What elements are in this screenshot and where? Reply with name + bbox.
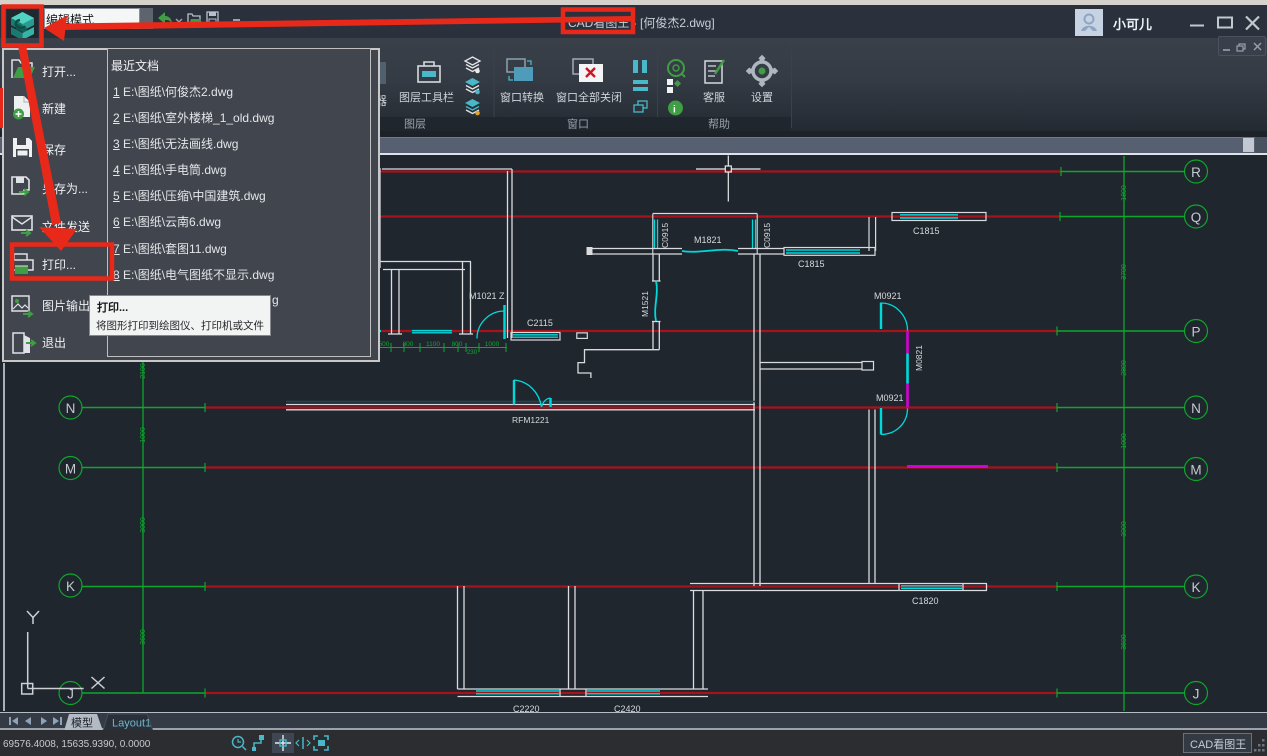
svg-text:M1821: M1821 bbox=[694, 235, 722, 245]
svg-text:C1815: C1815 bbox=[913, 226, 940, 236]
svg-text:N: N bbox=[66, 401, 76, 416]
svg-text:窗口全部关闭: 窗口全部关闭 bbox=[556, 90, 622, 104]
svg-text:C2115: C2115 bbox=[527, 318, 553, 328]
svg-text:C1820: C1820 bbox=[912, 596, 939, 606]
svg-text:C0915: C0915 bbox=[660, 223, 670, 248]
svg-text:M1021 Z: M1021 Z bbox=[469, 291, 505, 301]
svg-text:3000: 3000 bbox=[140, 517, 147, 533]
svg-text:P: P bbox=[1191, 325, 1200, 340]
svg-text:Layout1: Layout1 bbox=[112, 718, 151, 730]
svg-text:M1521: M1521 bbox=[640, 291, 650, 317]
svg-text:M0921: M0921 bbox=[874, 291, 902, 301]
svg-text:3000: 3000 bbox=[1121, 521, 1128, 537]
svg-text:230: 230 bbox=[467, 349, 478, 356]
svg-text:M0821: M0821 bbox=[914, 345, 924, 371]
svg-text:设置: 设置 bbox=[751, 91, 773, 104]
svg-text:M: M bbox=[65, 462, 76, 477]
svg-text:窗口: 窗口 bbox=[567, 117, 589, 131]
svg-text:1000: 1000 bbox=[140, 427, 147, 443]
svg-text:1000: 1000 bbox=[1121, 433, 1128, 449]
svg-text:C2420: C2420 bbox=[614, 704, 641, 712]
svg-text:K: K bbox=[1191, 580, 1200, 595]
svg-text:模型: 模型 bbox=[71, 716, 93, 730]
svg-text:客服: 客服 bbox=[703, 90, 725, 104]
svg-text:3600: 3600 bbox=[140, 629, 147, 645]
svg-text:1000: 1000 bbox=[485, 341, 500, 348]
svg-text:N: N bbox=[1191, 401, 1201, 416]
svg-text:R: R bbox=[1191, 165, 1201, 180]
svg-text:2100: 2100 bbox=[140, 363, 147, 379]
svg-text:800: 800 bbox=[403, 341, 414, 348]
svg-text:帮助: 帮助 bbox=[708, 117, 730, 131]
svg-text:C1815: C1815 bbox=[798, 259, 825, 269]
svg-text:800: 800 bbox=[452, 341, 463, 348]
svg-text:i: i bbox=[673, 105, 676, 116]
svg-text:M0921: M0921 bbox=[876, 393, 904, 403]
svg-text:Q: Q bbox=[1191, 210, 1202, 225]
svg-text:1800: 1800 bbox=[1121, 185, 1128, 201]
svg-text:C0915: C0915 bbox=[762, 223, 772, 248]
svg-text:500: 500 bbox=[379, 341, 390, 348]
svg-text:窗口转换: 窗口转换 bbox=[500, 90, 544, 104]
svg-text:K: K bbox=[66, 579, 75, 594]
svg-text:C2220: C2220 bbox=[513, 704, 540, 712]
svg-text:3700: 3700 bbox=[1121, 264, 1128, 280]
svg-text:3600: 3600 bbox=[1121, 634, 1128, 650]
svg-text:图层工具栏: 图层工具栏 bbox=[399, 90, 454, 104]
svg-text:RFM1221: RFM1221 bbox=[512, 415, 550, 425]
svg-text:2800: 2800 bbox=[1121, 360, 1128, 376]
svg-text:1100: 1100 bbox=[426, 341, 440, 348]
svg-text:图层: 图层 bbox=[404, 118, 426, 131]
svg-text:J: J bbox=[1193, 687, 1200, 702]
svg-text:M: M bbox=[1190, 463, 1201, 478]
